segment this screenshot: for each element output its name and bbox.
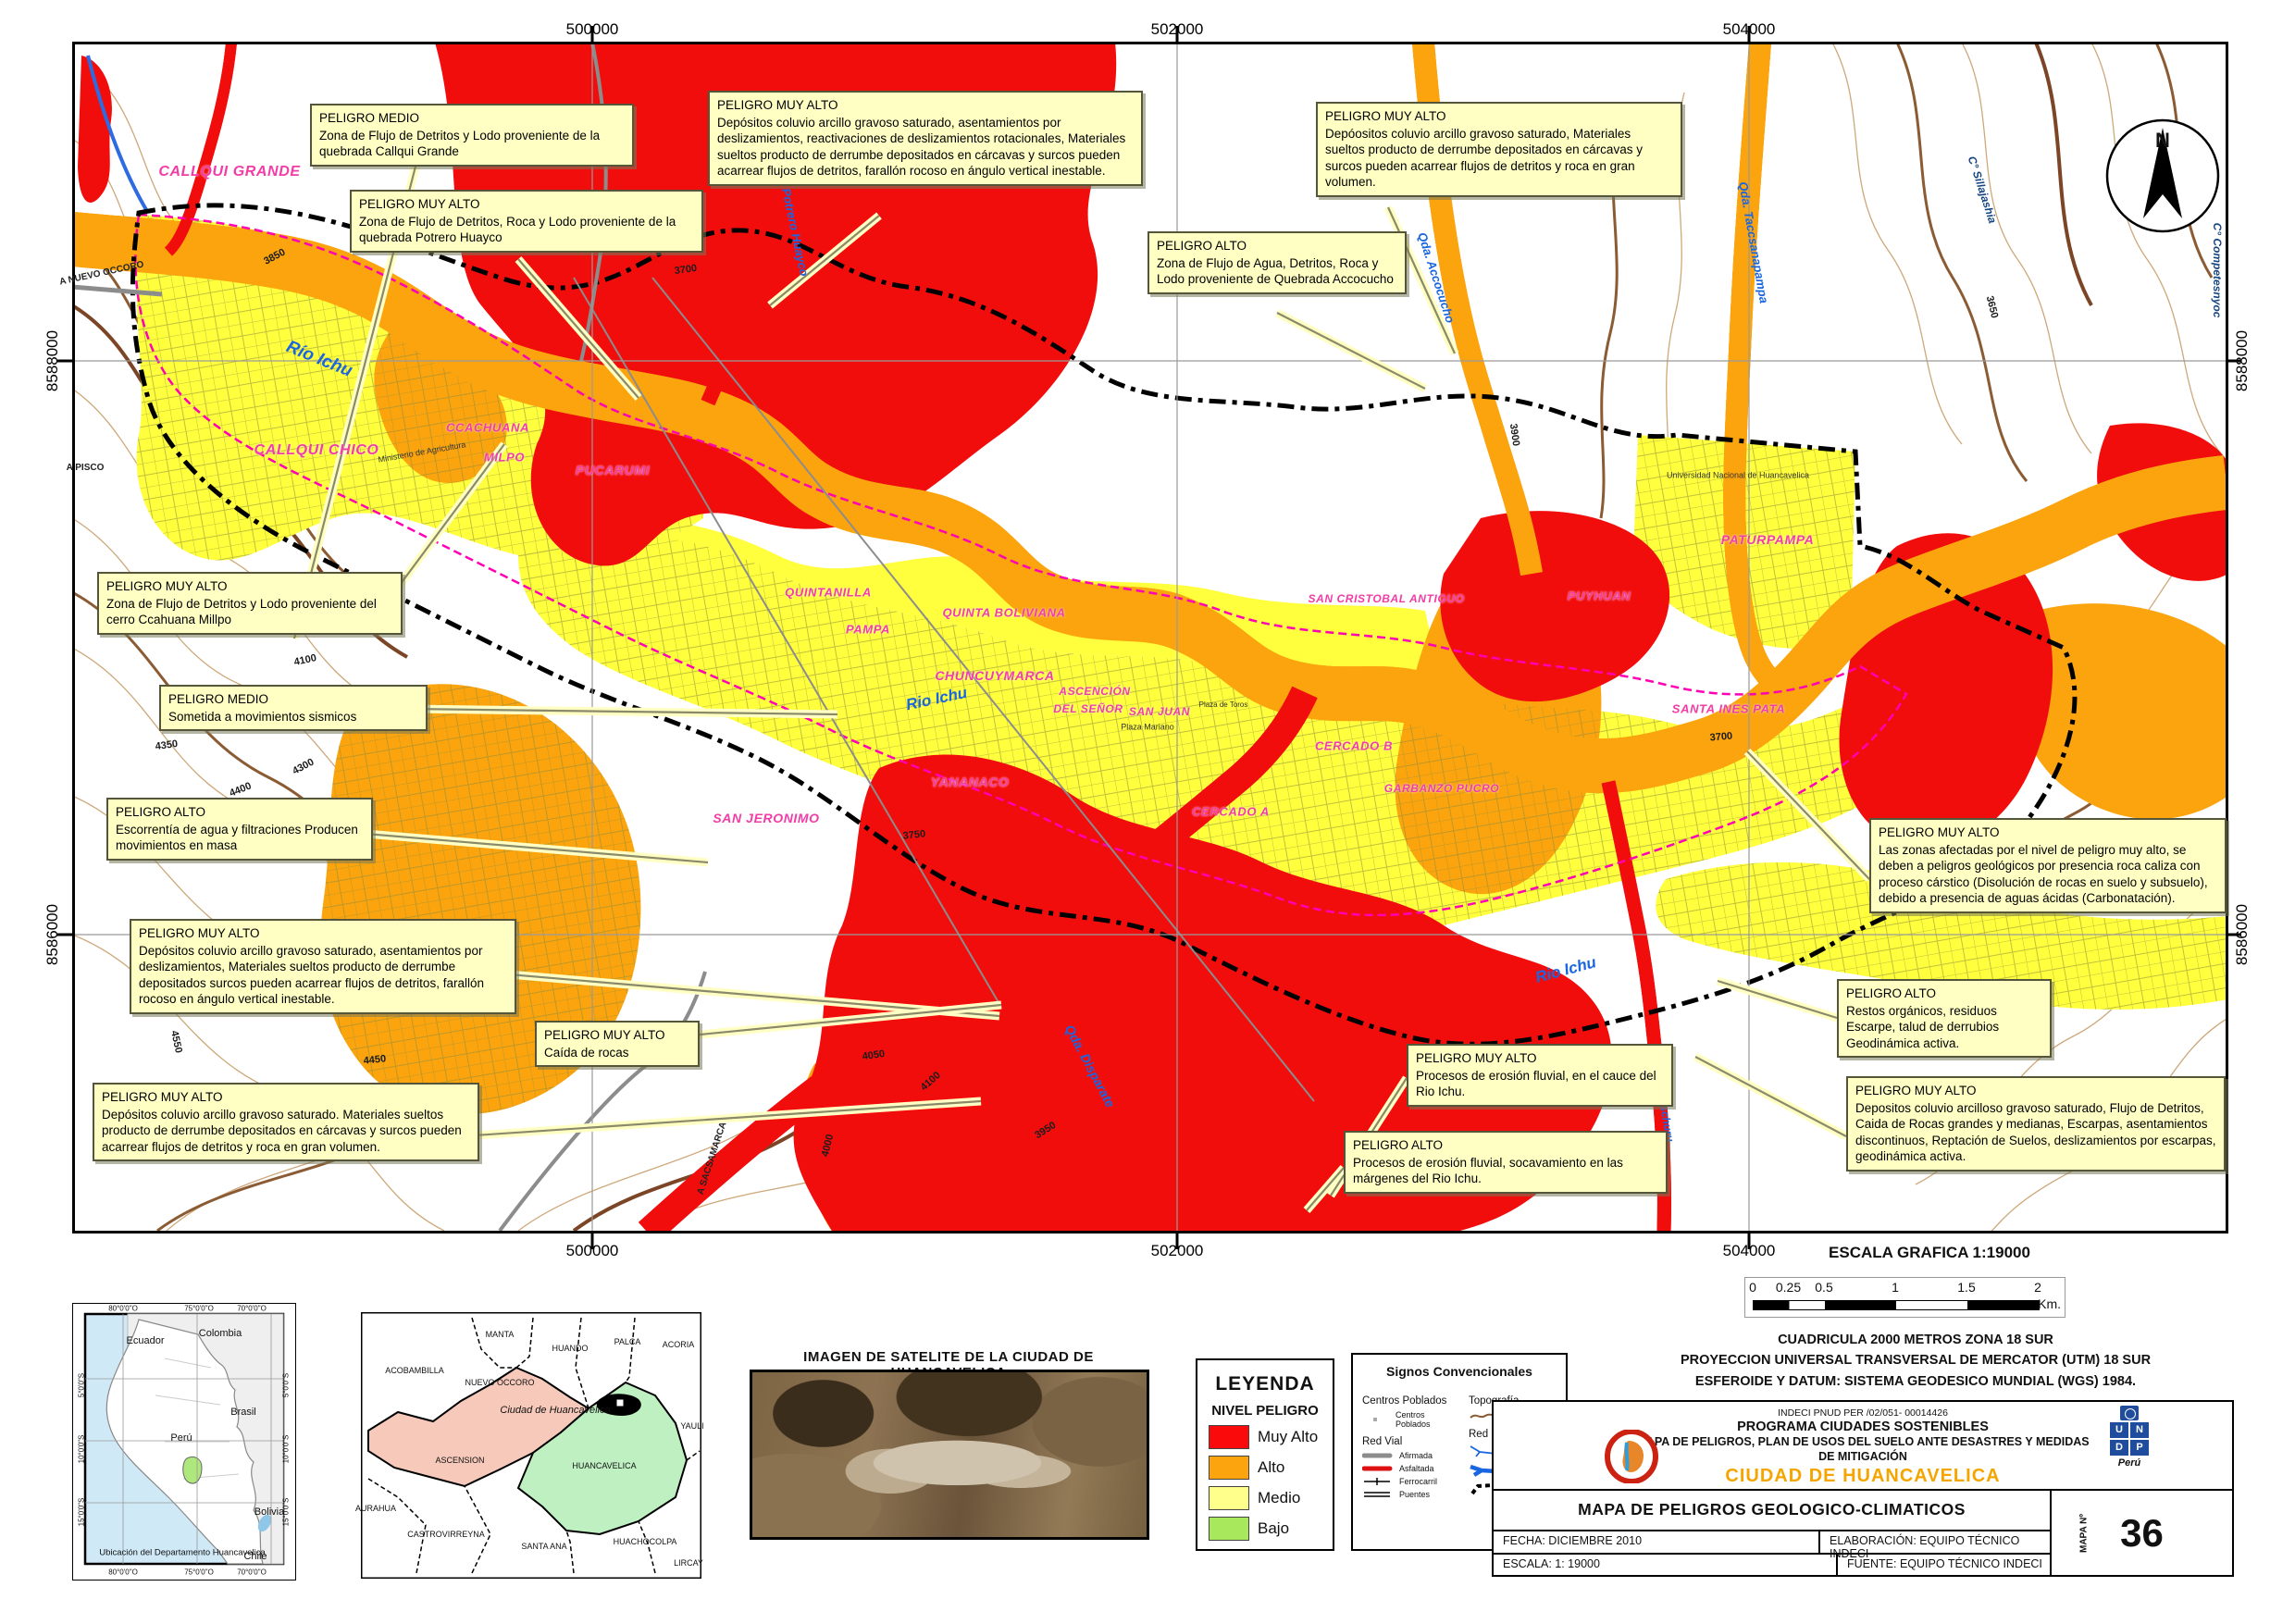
department-inset-label: HUACHOCOLPA [614, 1537, 677, 1546]
grid-coordinate: 8588000 [43, 330, 62, 391]
callout-body: Caída de rocas [544, 1045, 690, 1061]
callout-body: Zona de Flujo de Agua, Detritos, Roca y … [1157, 255, 1397, 288]
legend-item-label: Muy Alto [1258, 1428, 1318, 1446]
asfaltada-icon [1362, 1465, 1394, 1472]
red-vial-header: Red Vial [1362, 1436, 1459, 1447]
map-title: MAPA DE PELIGROS GEOLOGICO-CLIMATICOS [1494, 1491, 2050, 1531]
map-sheet: N 50000050200050400050000050200050400085… [0, 0, 2295, 1624]
place-label: PUCARUMI [576, 464, 650, 477]
centro-poblado-icon [1362, 1415, 1390, 1424]
place-label: CERCADO A [1192, 806, 1270, 818]
department-inset-label: ACORIA [663, 1340, 695, 1349]
legend-swatch [1209, 1425, 1249, 1449]
callout-title: PELIGRO ALTO [1846, 986, 2042, 1002]
callout-title: PELIGRO MUY ALTO [1879, 824, 2217, 841]
undp-letter: P [2130, 1440, 2149, 1456]
peru-inset-label: Ecuador [127, 1335, 165, 1346]
place-label: QUINTA BOLIVIANA [942, 607, 1065, 619]
department-inset-label: CASTROVIRREYNA [407, 1530, 485, 1539]
callout-body: Las zonas afectadas por el nivel de peli… [1879, 842, 2217, 907]
hazard-callout: PELIGRO ALTOZona de Flujo de Agua, Detri… [1147, 231, 1407, 294]
place-label: SAN JERONIMO [713, 812, 819, 824]
hazard-callout: PELIGRO MUY ALTOZona de Flujo de Detrito… [97, 572, 403, 635]
legend-item-label: Medio [1258, 1489, 1300, 1507]
callout-body: Procesos de erosión fluvial, en el cauce… [1416, 1068, 1664, 1100]
callout-title: PELIGRO MUY ALTO [544, 1027, 690, 1044]
callout-title: PELIGRO MUY ALTO [1416, 1050, 1664, 1067]
grid-coordinate: 500000 [566, 20, 619, 39]
place-label: MILPO [484, 452, 525, 464]
department-inset-label: YAULI [680, 1421, 703, 1431]
callout-title: PELIGRO MUY ALTO [102, 1089, 470, 1106]
ferrocarril-label: Ferrocarril [1399, 1477, 1437, 1486]
department-inset-label: NUEVO OCCORO [465, 1378, 534, 1387]
department-inset-label: MANTA [486, 1330, 515, 1339]
peru-inset-label: Brasil [230, 1407, 256, 1418]
hazard-callout: PELIGRO MUY ALTODepóositos coluvio arcil… [1316, 102, 1682, 197]
topo-label: C° Competesnyoc [2212, 223, 2223, 318]
peru-inset-coordinate: 80°0'0"O [108, 1305, 138, 1313]
place-label: CERCADO B [1315, 740, 1393, 752]
undp-letter: N [2130, 1422, 2149, 1438]
grid-coordinate: 504000 [1723, 1242, 1776, 1260]
tiny-label: Plaza Mariano [1121, 724, 1174, 732]
place-label: DEL SEÑOR [1053, 703, 1123, 714]
hazard-callout: PELIGRO ALTOEscorrentía de agua y filtra… [106, 798, 373, 861]
peru-inset-label: Perú [170, 1432, 192, 1444]
scale-tick: 0 [1749, 1280, 1756, 1295]
undp-country: Perú [2108, 1457, 2151, 1469]
legend-subtitle: NIVEL PELIGRO [1197, 1403, 1333, 1419]
hazard-callout: PELIGRO MUY ALTODepósitos coluvio arcill… [93, 1083, 479, 1161]
title-block: INDECI PNUD PER /02/051- 00014426 PROGRA… [1492, 1400, 2234, 1577]
asfaltada-label: Asfaltada [1399, 1464, 1434, 1473]
callout-body: Zona de Flujo de Detritos, Roca y Lodo p… [359, 214, 694, 246]
escala: ESCALA: 1: 19000 [1494, 1555, 1838, 1575]
grid-coordinate: 500000 [566, 1242, 619, 1260]
contour-label: 3900 [1507, 423, 1520, 447]
satellite-image [750, 1370, 1149, 1540]
hazard-callout: PELIGRO MUY ALTOCaída de rocas [535, 1021, 700, 1067]
place-label: YANANACO [931, 775, 1010, 788]
grid-coordinate: 502000 [1151, 20, 1204, 39]
place-label: PATURPAMPA [1721, 533, 1815, 546]
scale-title: ESCALA GRAFICA 1:19000 [1763, 1244, 2096, 1262]
afirmada-label: Afirmada [1399, 1451, 1433, 1460]
hazard-callout: PELIGRO MEDIOZona de Flujo de Detritos y… [310, 104, 634, 167]
scale-bar: 00.250.511.52 Km. [1744, 1277, 2065, 1318]
callout-body: Escorrentía de agua y filtraciones Produ… [116, 822, 364, 854]
centros-poblados-item: Centros Poblados [1396, 1410, 1459, 1429]
hazard-callout: PELIGRO MUY ALTODepositos coluvio arcill… [1846, 1076, 2226, 1172]
undp-letter: U [2110, 1422, 2128, 1438]
place-label: SAN JUAN [1129, 706, 1190, 717]
elaboracion: ELABORACIÓN: EQUIPO TÉCNICO INDECI [1820, 1531, 2050, 1553]
place-label: SANTA INES PATA [1672, 703, 1785, 715]
undp-letter: D [2110, 1440, 2128, 1456]
ferrocarril-icon [1362, 1477, 1394, 1486]
callout-body: Depositos coluvio arcilloso gravoso satu… [1855, 1100, 2216, 1165]
grid-coordinate: 8586000 [43, 904, 62, 965]
hazard-callout: PELIGRO MUY ALTODepósitos coluvio arcill… [130, 919, 516, 1014]
grid-coordinate: 8586000 [2233, 904, 2252, 965]
department-inset-label: HUANDO [552, 1344, 588, 1353]
legend-item: Bajo [1209, 1517, 1333, 1541]
scale-unit: Km. [2038, 1296, 2061, 1311]
projection-line: ESFEROIDE Y DATUM: SISTEMA GEODESICO MUN… [1656, 1371, 2175, 1392]
signos-title: Signos Convencionales [1353, 1364, 1566, 1379]
place-label: PAMPA [846, 624, 890, 636]
scale-tick: 0.5 [1815, 1280, 1832, 1295]
hazard-callout: PELIGRO MUY ALTOProcesos de erosión fluv… [1407, 1044, 1673, 1107]
scale-tick: 1.5 [1957, 1280, 1975, 1295]
callout-body: Procesos de erosión fluvial, socavamient… [1353, 1155, 1658, 1187]
legend-title: LEYENDA [1197, 1373, 1333, 1395]
peru-inset-coordinate: 10°0'0"S [78, 1435, 86, 1464]
place-label: CALLQUI GRANDE [158, 165, 300, 180]
peru-inset-coordinate: 80°0'0"O [108, 1568, 138, 1577]
place-label: SAN CRISTOBAL ANTIGUO [1308, 593, 1464, 604]
place-label: GARBANZO PUCRO [1384, 783, 1499, 794]
legend-item: Medio [1209, 1486, 1333, 1510]
road-label: A PISCO [67, 464, 105, 473]
puentes-icon [1362, 1490, 1394, 1499]
callout-title: PELIGRO ALTO [1353, 1137, 1658, 1154]
department-inset-label: LIRCAY [674, 1558, 703, 1568]
callout-body: Zona de Flujo de Detritos y Lodo proveni… [106, 596, 393, 628]
hazard-callout: PELIGRO MUY ALTOLas zonas afectadas por … [1869, 818, 2227, 913]
legend-swatch [1209, 1486, 1249, 1510]
hazard-callout: PELIGRO MEDIOSometida a movimientos sism… [159, 685, 428, 731]
centros-poblados-header: Centros Poblados [1362, 1395, 1459, 1407]
peru-inset-coordinate: 70°0'0"O [237, 1568, 267, 1577]
map-number: 36 [2120, 1511, 2164, 1556]
peru-inset-label: Bolivia [254, 1506, 284, 1518]
callout-title: PELIGRO MUY ALTO [717, 97, 1134, 114]
projection-line: CUADRICULA 2000 METROS ZONA 18 SUR [1656, 1330, 2175, 1350]
scale-tick: 0.25 [1776, 1280, 1801, 1295]
callout-title: PELIGRO MEDIO [319, 110, 625, 127]
callout-body: Sometida a movimientos sismicos [168, 709, 418, 725]
tiny-label: Universidad Nacional de Huancavelica [1667, 472, 1809, 480]
peru-inset-coordinate: 5°0'0"S [282, 1373, 291, 1397]
department-inset-label: SANTA ANA [521, 1542, 566, 1551]
callout-title: PELIGRO MUY ALTO [1325, 108, 1673, 125]
legend-item-label: Bajo [1258, 1519, 1289, 1538]
peru-inset-coordinate: 75°0'0"O [184, 1305, 214, 1313]
scale-tick: 2 [2034, 1280, 2041, 1295]
hazard-callout: PELIGRO MUY ALTODepósitos coluvio arcill… [708, 91, 1143, 186]
projection-info: CUADRICULA 2000 METROS ZONA 18 SURPROYEC… [1656, 1330, 2175, 1392]
scale-bar-strip [1753, 1300, 2040, 1310]
department-inset-label: Ciudad de Huancavelica [500, 1405, 610, 1416]
afirmada-icon [1362, 1452, 1394, 1459]
legend-swatch [1209, 1517, 1249, 1541]
legend-item: Alto [1209, 1456, 1333, 1480]
peru-inset-coordinate: 10°0'0"S [282, 1435, 291, 1464]
fecha: FECHA: DICIEMBRE 2010 [1494, 1531, 1820, 1553]
peru-inset-coordinate: 15°0'0"S [78, 1498, 86, 1527]
legend-item-label: Alto [1258, 1458, 1284, 1477]
callout-body: Restos orgánicos, residuos Escarpe, talu… [1846, 1003, 2042, 1052]
north-label: N [2155, 129, 2170, 153]
department-inset-label: ACOBAMBILLA [385, 1366, 444, 1375]
indeci-logo [1605, 1430, 1658, 1483]
callout-body: Depósitos coluvio arcillo gravoso satura… [139, 943, 507, 1008]
callout-body: Depósitos coluvio arcillo gravoso satura… [717, 115, 1134, 180]
legend: LEYENDA NIVEL PELIGRO Muy AltoAltoMedioB… [1196, 1358, 1334, 1551]
peru-inset-coordinate: 75°0'0"O [184, 1568, 214, 1577]
callout-title: PELIGRO MUY ALTO [106, 578, 393, 595]
callout-title: PELIGRO MUY ALTO [359, 196, 694, 213]
undp-emblem-icon [2120, 1406, 2139, 1420]
peru-inset-label: Ubicación del Departamento Huancavelica [99, 1548, 266, 1558]
undp-logo: U N D P Perú [2108, 1406, 2151, 1469]
projection-line: PROYECCION UNIVERSAL TRANSVERSAL DE MERC… [1656, 1350, 2175, 1370]
legend-item: Muy Alto [1209, 1425, 1333, 1449]
scale-tick: 1 [1892, 1280, 1899, 1295]
place-label: CCACHUANA [446, 422, 529, 434]
hazard-callout: PELIGRO MUY ALTOZona de Flujo de Detrito… [350, 190, 703, 253]
callout-title: PELIGRO MEDIO [168, 691, 418, 708]
callout-title: PELIGRO ALTO [116, 804, 364, 821]
callout-body: Depósitos coluvio arcillo gravoso satura… [102, 1107, 470, 1156]
callout-body: Zona de Flujo de Detritos y Lodo proveni… [319, 128, 625, 160]
peru-inset-coordinate: 15°0'0"S [282, 1498, 291, 1527]
callout-title: PELIGRO MUY ALTO [139, 925, 507, 942]
grid-coordinate: 502000 [1151, 1242, 1204, 1260]
contour-label: 3700 [1709, 731, 1732, 743]
place-label: PUYHUAN [1568, 590, 1631, 602]
callout-title: PELIGRO MUY ALTO [1855, 1083, 2216, 1099]
grid-coordinate: 504000 [1723, 20, 1776, 39]
peru-inset-coordinate: 70°0'0"O [237, 1305, 267, 1313]
grid-coordinate: 8588000 [2233, 330, 2252, 391]
place-label: QUINTANILLA [785, 587, 872, 599]
department-inset-label: AURAHUA [355, 1504, 396, 1513]
place-label: CHUNCUYMARCA [935, 669, 1054, 682]
peru-inset-coordinate: 5°0'0"S [78, 1373, 86, 1397]
place-label: CALLQUI CHICO [254, 443, 379, 458]
tiny-label: Plaza de Toros [1199, 701, 1248, 709]
legend-swatch [1209, 1456, 1249, 1480]
callout-title: PELIGRO ALTO [1157, 238, 1397, 254]
peru-inset-label: Colombia [199, 1328, 242, 1339]
department-inset-label: HUANCAVELICA [572, 1461, 636, 1470]
puentes-label: Puentes [1399, 1490, 1430, 1499]
department-inset-label: ASCENSION [435, 1456, 484, 1465]
hazard-callout: PELIGRO ALTORestos orgánicos, residuos E… [1837, 979, 2052, 1058]
map-number-label: MAPA Nº [2078, 1514, 2089, 1553]
hazard-callout: PELIGRO ALTOProcesos de erosión fluvial,… [1344, 1131, 1668, 1194]
fuente: FUENTE: EQUIPO TÉCNICO INDECI [1838, 1555, 2042, 1575]
department-inset-label: PALCA [614, 1337, 641, 1346]
place-label: ASCENCIÓN [1059, 686, 1130, 697]
callout-body: Depóositos coluvio arcillo gravoso satur… [1325, 126, 1673, 191]
